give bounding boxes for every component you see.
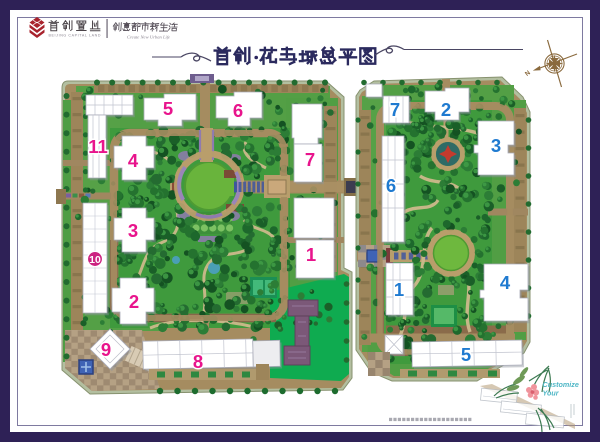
svg-text:4: 4 [128, 150, 139, 171]
svg-text:1: 1 [394, 279, 404, 300]
svg-text:7: 7 [390, 99, 400, 120]
svg-text:3: 3 [491, 135, 501, 156]
svg-text:9: 9 [101, 339, 111, 360]
svg-text:4: 4 [500, 272, 511, 293]
svg-text:6: 6 [386, 175, 396, 196]
svg-text:10: 10 [89, 254, 101, 266]
svg-text:3: 3 [128, 220, 138, 241]
svg-text:1: 1 [306, 244, 316, 265]
svg-text:Your: Your [543, 389, 560, 398]
svg-text:6: 6 [233, 100, 243, 121]
svg-text:5: 5 [163, 98, 173, 119]
svg-text:11: 11 [88, 136, 108, 157]
svg-text:2: 2 [129, 291, 139, 312]
svg-text:8: 8 [193, 351, 203, 372]
svg-text:2: 2 [441, 99, 451, 120]
svg-text:7: 7 [305, 149, 315, 170]
svg-text:BEIJING CAPITAL LAND: BEIJING CAPITAL LAND [49, 34, 102, 38]
svg-text:Create New Urban Life: Create New Urban Life [127, 35, 170, 40]
svg-text:5: 5 [461, 344, 471, 365]
